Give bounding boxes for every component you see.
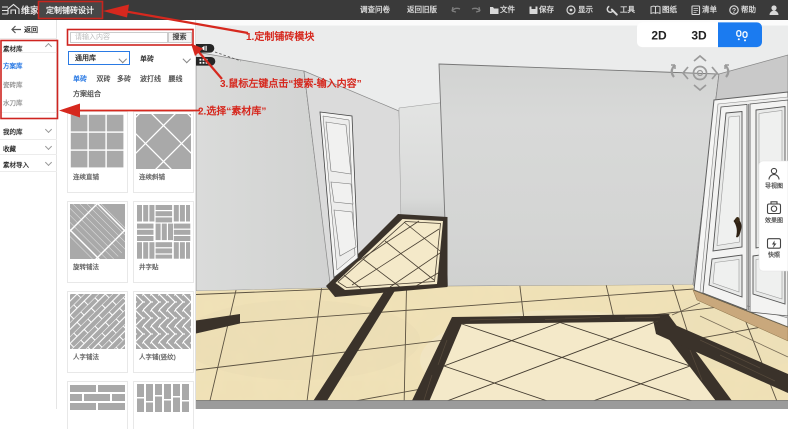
svg-text:2.选择“素材库”: 2.选择“素材库” [198,105,266,118]
svg-text:1.定制铺砖模块: 1.定制铺砖模块 [246,30,315,43]
svg-text:3.鼠标左键点击“搜索-输入内容”: 3.鼠标左键点击“搜索-输入内容” [220,77,362,90]
